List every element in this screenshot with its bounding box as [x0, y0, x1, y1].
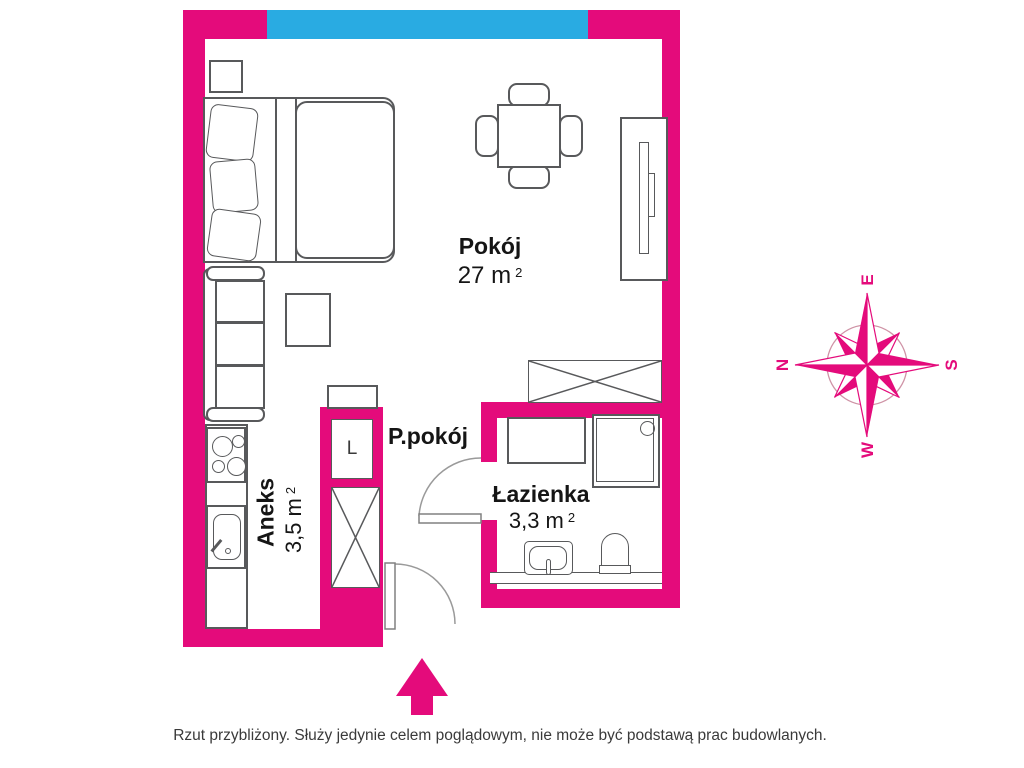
- shelf: [327, 385, 378, 409]
- floorplan-canvas: L Pokój: [0, 0, 1024, 768]
- faucet-icon: [546, 559, 551, 575]
- room-label-ppokoj: P.pokój: [348, 423, 508, 450]
- compass-label-n: N: [773, 359, 792, 371]
- stove-burner: [212, 460, 225, 473]
- wardrobe-crossed: [528, 360, 662, 403]
- x-cross-icon: [529, 361, 661, 402]
- entrance-arrow-icon: [396, 658, 448, 696]
- bathroom-sink: [524, 541, 573, 575]
- dining-table: [497, 104, 561, 168]
- compass-label-s: S: [942, 359, 961, 370]
- compass-label-w: W: [858, 441, 877, 458]
- sofa-cushion: [215, 280, 265, 323]
- toilet-base: [599, 565, 631, 574]
- sofa-armrest: [206, 266, 265, 281]
- bathroom-counter: [490, 572, 662, 584]
- sofa-cushion: [215, 365, 265, 409]
- nightstand: [209, 60, 243, 93]
- stove-burner: [227, 457, 246, 476]
- shower-drain-icon: [640, 421, 655, 436]
- area-label-aneks: 3,5 m2: [281, 450, 307, 590]
- dining-chair-bottom: [508, 165, 550, 189]
- wall-right: [662, 10, 680, 608]
- pillow: [206, 208, 262, 262]
- compass-rose-icon: N E S W: [772, 270, 962, 460]
- sofa-armrest: [206, 407, 265, 422]
- room-label-aneks: Aneks: [253, 443, 280, 583]
- area-label-pokoj: 27 m2: [400, 262, 580, 290]
- dining-chair-left: [475, 115, 499, 157]
- kitchen-sink: [206, 505, 246, 569]
- stove-burner: [212, 436, 233, 457]
- coffee-table: [285, 293, 331, 347]
- washing-machine: [507, 417, 586, 464]
- bathroom-wall-bottom: [481, 589, 680, 608]
- stove: [206, 427, 246, 483]
- dining-chair-right: [559, 115, 583, 157]
- bed-fold-line: [275, 99, 297, 261]
- disclaimer-text: Rzut przybliżony. Służy jedynie celem po…: [0, 727, 1000, 745]
- toilet: [601, 533, 629, 569]
- area-label-lazienka: 3,3 m2: [462, 508, 622, 534]
- compass-label-e: E: [858, 274, 877, 285]
- duvet: [295, 101, 395, 259]
- window-icon: [267, 10, 588, 39]
- x-cross-icon: [332, 488, 379, 587]
- shaft-crossed: [331, 487, 380, 588]
- entrance-arrow-stem: [411, 695, 433, 715]
- pillow: [209, 158, 259, 214]
- shower: [592, 414, 660, 488]
- wardrobe-handle: [648, 173, 655, 217]
- pillow: [205, 103, 259, 162]
- stove-burner: [232, 435, 245, 448]
- entry-door: [383, 558, 463, 650]
- room-label-lazienka: Łazienka: [461, 481, 621, 508]
- wall-left: [183, 10, 205, 647]
- faucet-icon: [225, 548, 231, 554]
- room-label-pokoj: Pokój: [400, 233, 580, 260]
- sofa-cushion: [215, 322, 265, 366]
